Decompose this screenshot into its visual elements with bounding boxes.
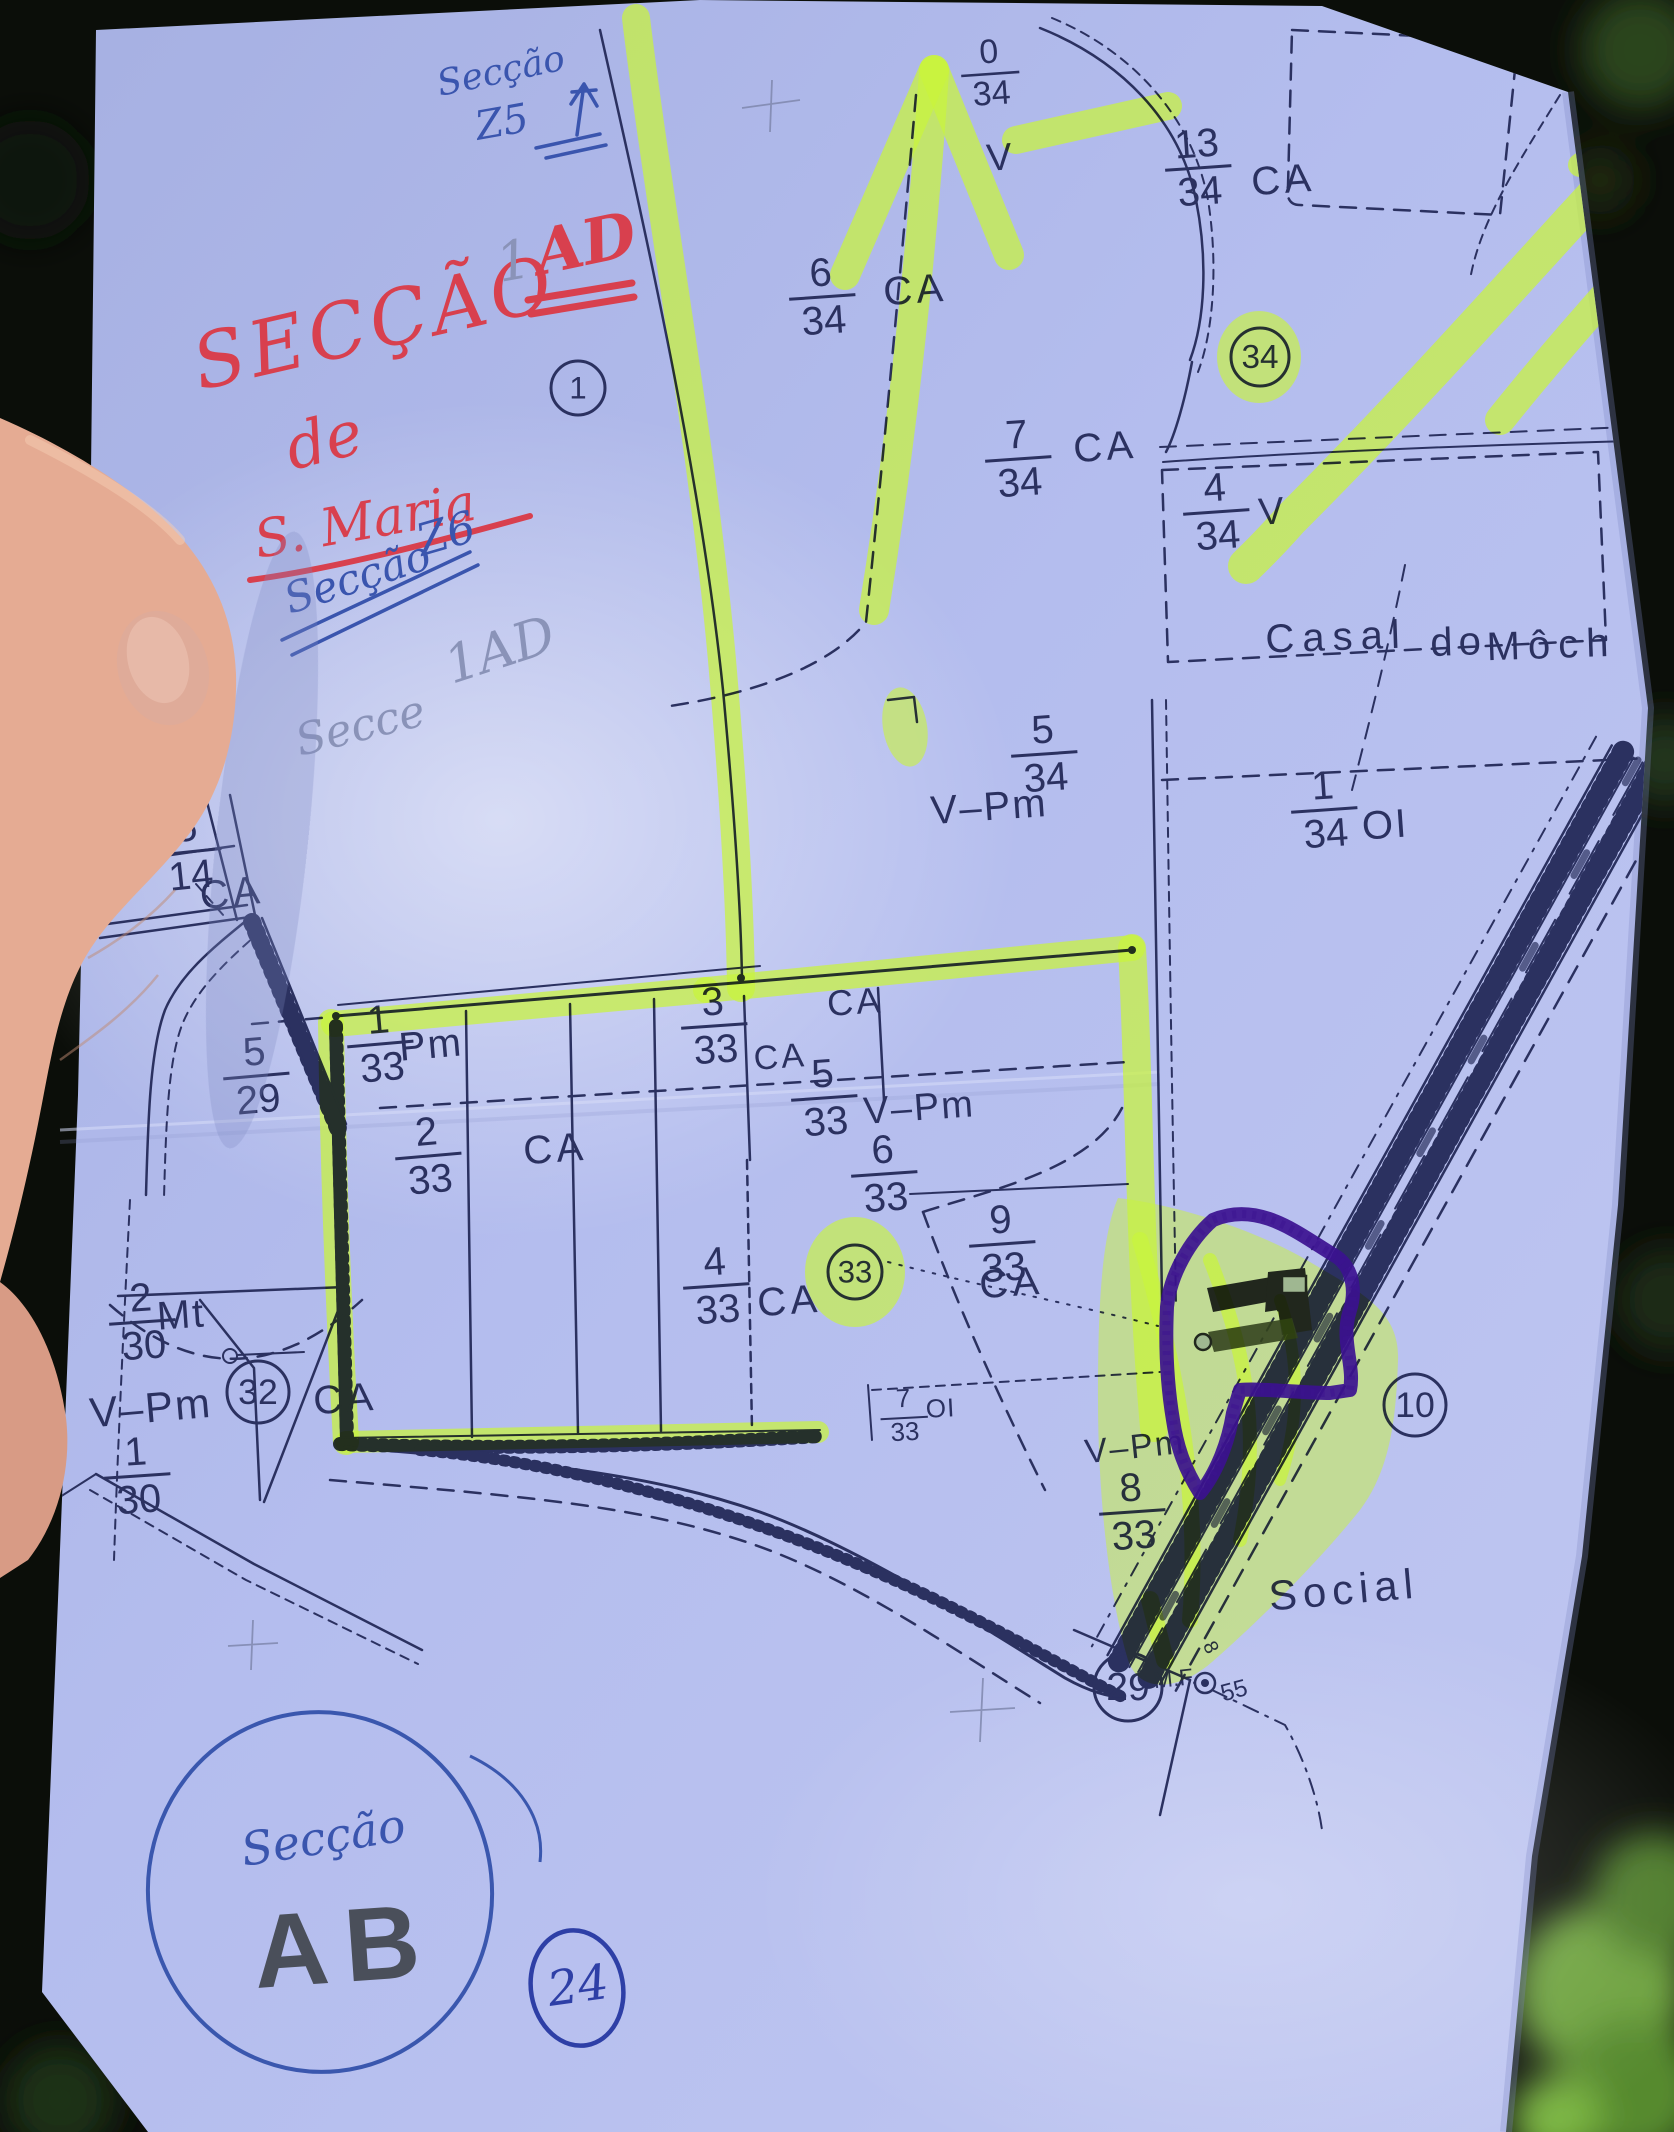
- svg-text:34: 34: [1302, 810, 1349, 857]
- svg-text:33: 33: [890, 1416, 920, 1447]
- svg-text:9: 9: [988, 1197, 1013, 1242]
- svg-text:5: 5: [1030, 707, 1055, 752]
- svg-text:33: 33: [694, 1286, 741, 1333]
- svg-text:33: 33: [802, 1098, 849, 1145]
- svg-text:34: 34: [996, 459, 1043, 506]
- svg-text:2: 2: [128, 1275, 153, 1320]
- svg-text:4: 4: [702, 1239, 727, 1284]
- svg-text:6: 6: [870, 1127, 895, 1172]
- place-mocho: Môch: [1486, 621, 1617, 670]
- svg-text:33: 33: [406, 1156, 454, 1204]
- land-use-label-mt: Mt: [155, 1291, 206, 1338]
- svg-text:34: 34: [971, 73, 1011, 114]
- land-use-label-oi: OI: [925, 1392, 956, 1424]
- land-use-label-ca: CA: [1250, 156, 1316, 204]
- bottom-circled-number: 24: [543, 1954, 612, 2018]
- land-use-label-oi: OI: [1360, 801, 1409, 848]
- svg-text:33: 33: [862, 1174, 909, 1221]
- land-use-label-v–pm: V–Pm: [929, 781, 1049, 833]
- svg-text:6: 6: [808, 250, 833, 295]
- land-use-label-ca: CA: [752, 1036, 808, 1078]
- svg-text:4: 4: [1202, 465, 1227, 510]
- photo-of-cadastral-map: 0346341334734434534134514529133233333533…: [0, 0, 1674, 2132]
- svg-text:0: 0: [978, 32, 1000, 71]
- svg-text:30: 30: [115, 1476, 162, 1523]
- svg-text:1: 1: [569, 370, 586, 405]
- svg-text:32: 32: [238, 1372, 278, 1412]
- svg-text:34: 34: [800, 297, 847, 344]
- place-do: do: [1430, 619, 1488, 665]
- blue-top-code: Z5: [470, 95, 532, 150]
- svg-text:10: 10: [1395, 1385, 1435, 1425]
- svg-text:1: 1: [1310, 763, 1335, 808]
- land-use-label-ca: CA: [522, 1125, 588, 1173]
- land-use-label-v–pm: V–Pm: [862, 1083, 976, 1133]
- svg-text:2: 2: [413, 1109, 439, 1155]
- bottom-circle-code: AB: [250, 1883, 440, 2011]
- svg-text:34: 34: [1176, 168, 1223, 215]
- svg-text:7: 7: [1004, 412, 1029, 457]
- place-casal: Casal: [1265, 613, 1409, 662]
- svg-text:1: 1: [123, 1429, 148, 1474]
- svg-text:13: 13: [1173, 121, 1220, 168]
- svg-text:5: 5: [810, 1051, 835, 1096]
- land-use-label-ca: CA: [1072, 423, 1138, 471]
- svg-text:7: 7: [895, 1383, 911, 1414]
- svg-text:33: 33: [692, 1026, 739, 1073]
- land-use-label-ca: CA: [978, 1259, 1044, 1307]
